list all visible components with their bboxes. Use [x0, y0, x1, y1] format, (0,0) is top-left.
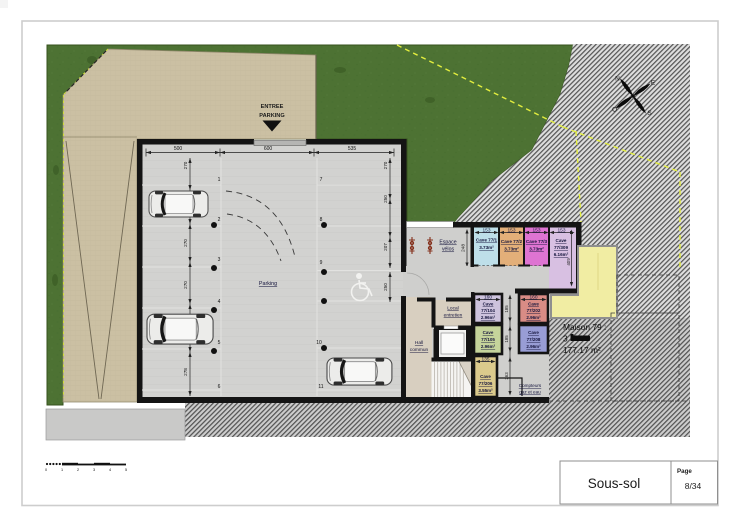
svg-text:2.96m²: 2.96m² [481, 315, 496, 320]
svg-text:2.96m²: 2.96m² [481, 344, 496, 349]
svg-text:153: 153 [532, 228, 540, 234]
svg-text:Cave: Cave [528, 330, 539, 335]
svg-text:S: S [647, 110, 652, 117]
svg-text:Cave 77/3: Cave 77/3 [526, 239, 548, 244]
svg-text:6.16m²: 6.16m² [554, 252, 569, 257]
svg-text:77/206: 77/206 [479, 381, 493, 386]
svg-text:PARKING: PARKING [259, 113, 284, 119]
svg-text:270: 270 [183, 239, 188, 247]
svg-text:409: 409 [566, 258, 571, 266]
svg-text:250: 250 [383, 195, 388, 203]
svg-text:ENTREE: ENTREE [261, 104, 284, 110]
svg-text:160: 160 [484, 295, 492, 301]
svg-text:77/105: 77/105 [481, 337, 495, 342]
svg-text:Espace: Espace [439, 240, 456, 246]
svg-text:270: 270 [183, 281, 188, 289]
svg-text:6: 6 [218, 384, 221, 390]
svg-text:Local: Local [447, 306, 458, 312]
svg-text:gaz et eau: gaz et eau [519, 390, 541, 395]
svg-text:11: 11 [318, 384, 323, 390]
svg-text:250: 250 [383, 283, 388, 291]
svg-text:5: 5 [125, 468, 127, 472]
svg-text:1: 1 [218, 177, 221, 183]
svg-text:Page: Page [677, 468, 692, 475]
svg-text:N: N [615, 76, 620, 83]
svg-text:2.96m²: 2.96m² [526, 344, 541, 349]
svg-text:Cave: Cave [528, 302, 539, 307]
svg-text:Compteurs: Compteurs [519, 383, 542, 388]
svg-text:1: 1 [61, 468, 63, 472]
svg-text:160: 160 [529, 295, 537, 301]
svg-text:8/34: 8/34 [685, 481, 702, 491]
svg-text:2.96m²: 2.96m² [526, 315, 541, 320]
svg-text:entretien: entretien [444, 313, 463, 319]
svg-text:248: 248 [461, 244, 467, 252]
svg-text:5: 5 [218, 340, 221, 346]
svg-text:3.73m²: 3.73m² [529, 247, 544, 252]
svg-text:77/202: 77/202 [527, 308, 541, 313]
svg-text:207: 207 [383, 243, 388, 251]
svg-text:77/104: 77/104 [481, 308, 495, 313]
svg-text:278: 278 [183, 368, 188, 376]
svg-text:Maison 79 :: Maison 79 : [563, 322, 606, 332]
svg-text:185: 185 [504, 335, 509, 343]
svg-text:3: 3 [563, 334, 568, 344]
svg-text:3.55m²: 3.55m² [478, 388, 493, 393]
svg-text:77/309: 77/309 [554, 245, 568, 250]
svg-text:Cave: Cave [556, 238, 567, 243]
svg-text:0: 0 [45, 468, 47, 472]
svg-text:177.17 m²: 177.17 m² [563, 345, 601, 355]
svg-text:Cave: Cave [480, 374, 491, 379]
svg-text:153: 153 [482, 228, 490, 234]
svg-text:Cave 77/1: Cave 77/1 [476, 238, 498, 243]
svg-text:Cave: Cave [483, 302, 494, 307]
svg-text:185: 185 [504, 305, 509, 313]
svg-text:4: 4 [109, 468, 111, 472]
svg-text:2: 2 [77, 468, 79, 472]
svg-text:Parking: Parking [259, 281, 277, 287]
svg-text:3.73m²: 3.73m² [504, 247, 519, 252]
svg-text:3: 3 [93, 468, 95, 472]
svg-text:153: 153 [557, 228, 565, 234]
svg-text:Cave: Cave [483, 330, 494, 335]
svg-text:9: 9 [320, 260, 323, 266]
svg-text:Sous-sol: Sous-sol [588, 476, 641, 491]
svg-text:270: 270 [383, 161, 388, 169]
svg-text:2: 2 [218, 217, 221, 223]
svg-text:500: 500 [174, 146, 183, 152]
svg-text:3: 3 [218, 257, 221, 263]
svg-text:E: E [651, 80, 656, 87]
svg-text:3.73m²: 3.73m² [479, 245, 494, 250]
svg-text:535: 535 [348, 146, 357, 152]
svg-text:600: 600 [264, 146, 273, 152]
svg-text:7: 7 [320, 177, 323, 183]
svg-text:4: 4 [218, 299, 221, 305]
svg-text:O: O [612, 107, 617, 114]
svg-text:vélos: vélos [442, 247, 455, 253]
svg-text:270: 270 [183, 161, 188, 169]
svg-text:77/208: 77/208 [527, 337, 541, 342]
svg-text:135: 135 [481, 357, 489, 363]
svg-text:commun: commun [410, 348, 429, 353]
svg-text:153: 153 [507, 228, 515, 234]
svg-text:8: 8 [320, 217, 323, 223]
svg-text:Hall: Hall [415, 340, 423, 346]
svg-text:Cave 77/2: Cave 77/2 [501, 239, 523, 244]
svg-text:10: 10 [316, 340, 322, 346]
